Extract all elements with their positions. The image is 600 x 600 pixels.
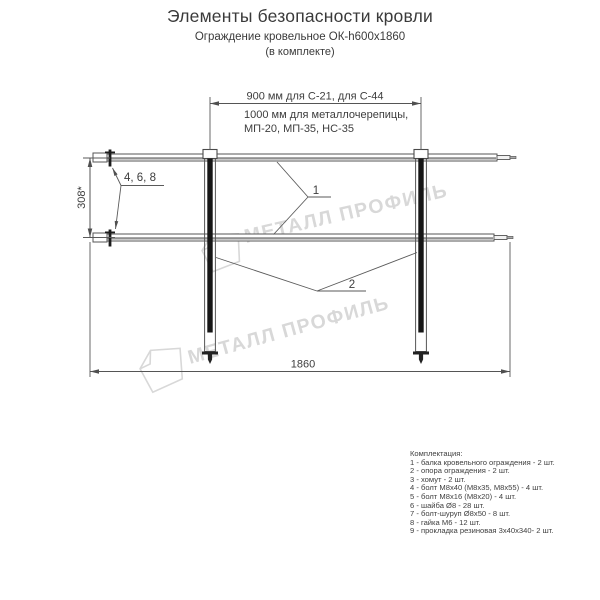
- top-span-dimension: 900 мм для С-21, для С-44 1000 мм для ме…: [210, 91, 421, 151]
- parts-list: Комплектация: 1 - балка кровельного огра…: [410, 450, 555, 536]
- parts-item-9: 9 - прокладка резиновая 3х40х340- 2 шт.: [410, 527, 555, 536]
- span-1000-label-line2: МП-20, МП-35, НС-35: [244, 123, 354, 135]
- width-dim-label: 1860: [291, 359, 315, 371]
- metal-profil-logo-icon: [136, 343, 189, 394]
- fasteners-callout-label: 4, 6, 8: [124, 172, 156, 184]
- height-dimension: 308*: [76, 158, 115, 238]
- top-rail-beam: [93, 150, 516, 167]
- callout-fasteners: 4, 6, 8: [113, 168, 165, 229]
- watermark-upper: МЕТАЛЛ ПРОФИЛЬ: [199, 180, 450, 273]
- span-900-label: 900 мм для С-21, для С-44: [246, 91, 383, 103]
- watermark-lower: МЕТАЛЛ ПРОФИЛЬ: [136, 292, 392, 394]
- width-dimension: 1860: [90, 242, 510, 377]
- height-dim-label: 308*: [76, 185, 88, 208]
- watermark-text-lower: МЕТАЛЛ ПРОФИЛЬ: [185, 292, 392, 369]
- left-post: [202, 150, 218, 365]
- right-post: [413, 150, 429, 365]
- beam-callout-label: 1: [313, 185, 319, 197]
- span-1000-label-line1: 1000 мм для металлочерепицы,: [244, 109, 408, 121]
- callout-post: 2: [216, 253, 417, 292]
- page: Элементы безопасности кровли Ограждение …: [0, 0, 600, 600]
- post-callout-label: 2: [349, 279, 355, 291]
